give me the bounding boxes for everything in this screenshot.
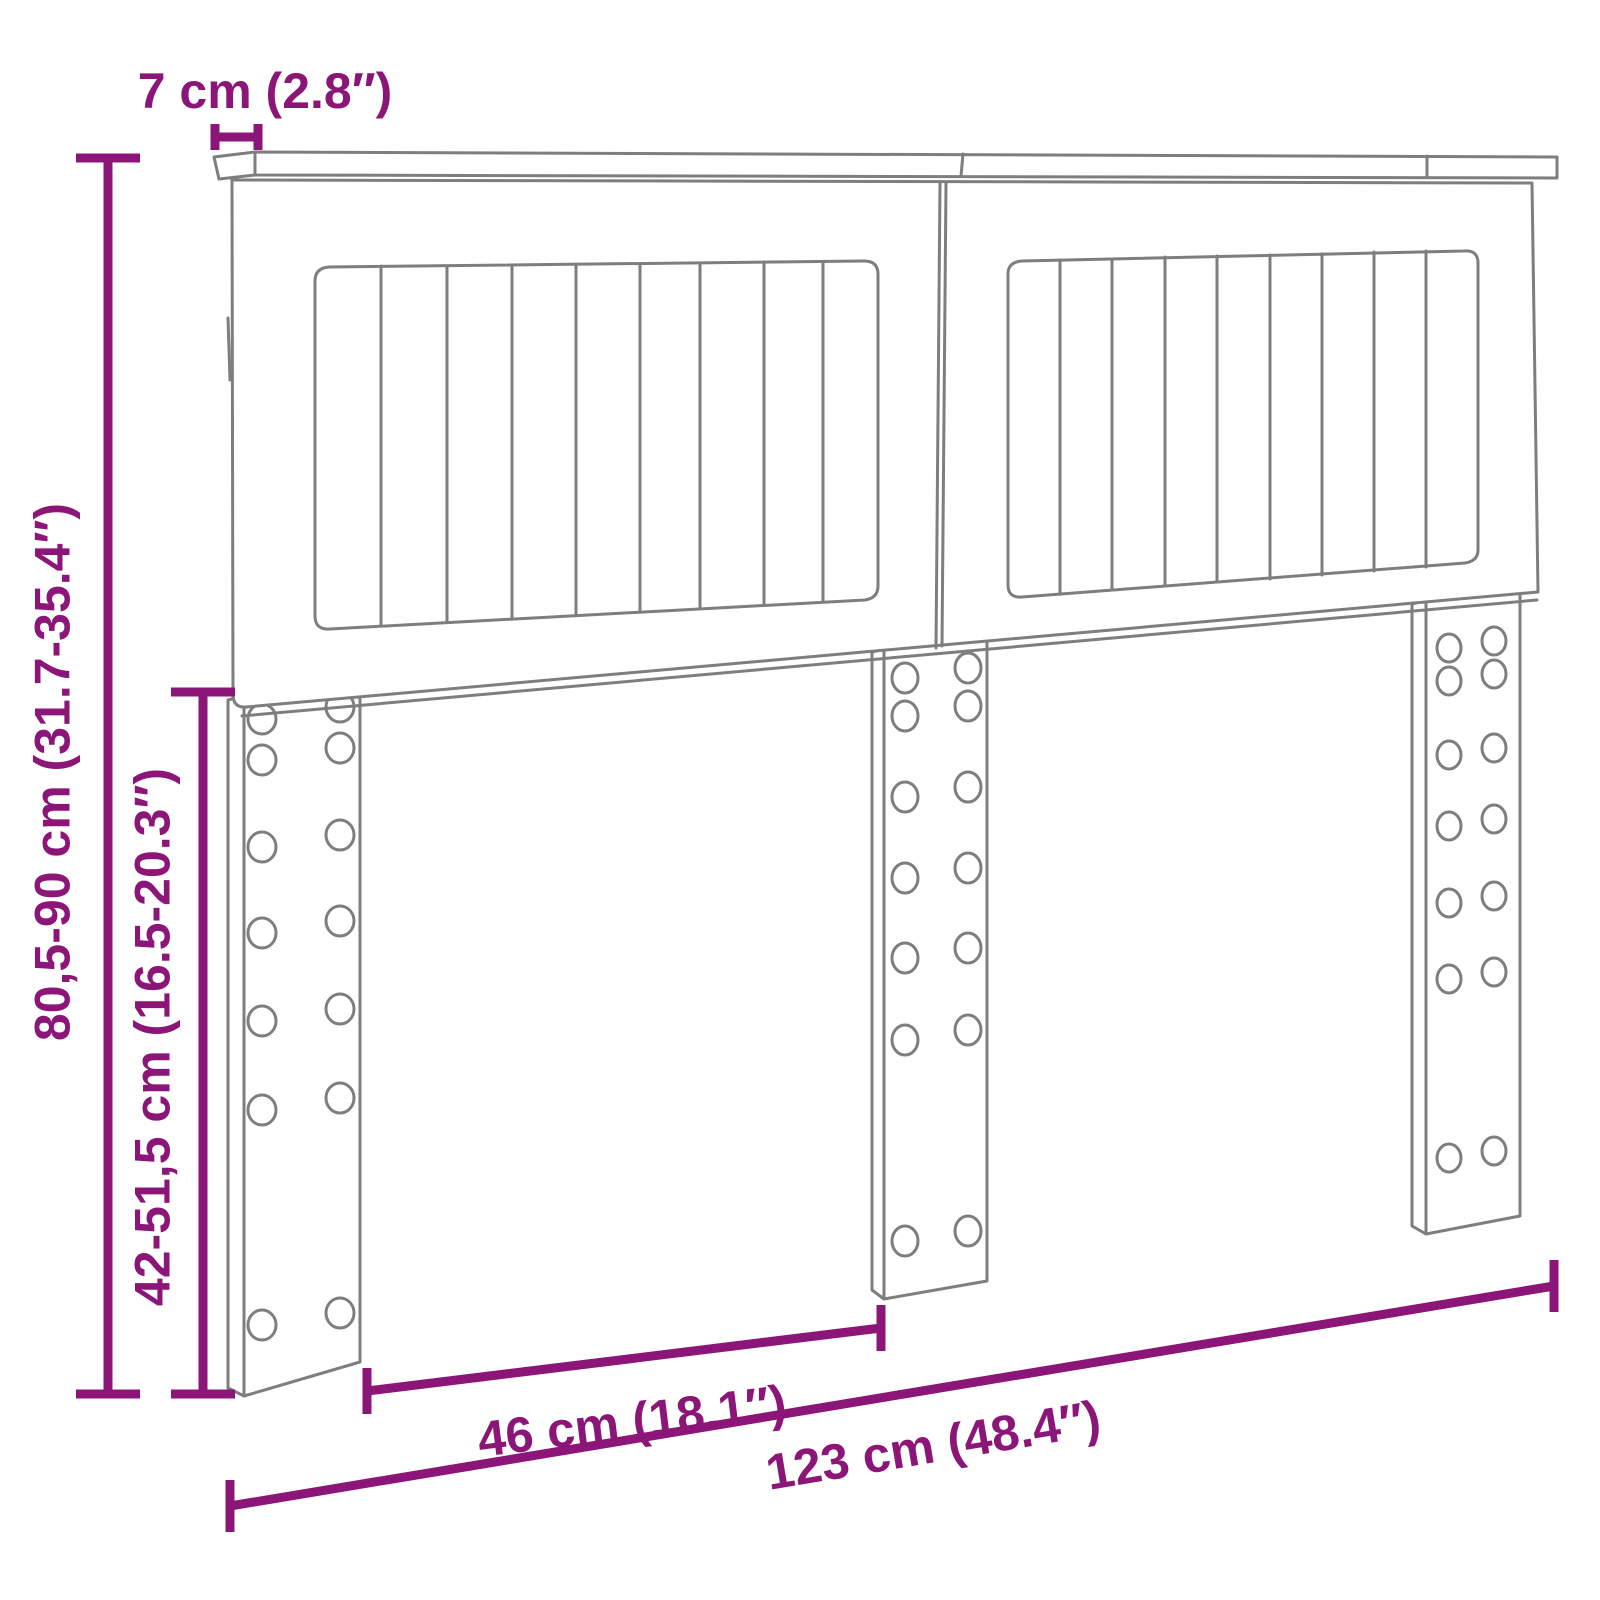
left-leg [228, 686, 360, 1396]
top-board-left-cap [214, 152, 255, 179]
diagram-canvas: 7 cm (2.8″) 80,5-90 cm (31.7-35.4″) 42-5… [0, 0, 1600, 1600]
screw-hole [892, 863, 918, 893]
screw-hole [1482, 958, 1506, 986]
screw-hole [892, 1025, 918, 1055]
dim-leg-spacing-label: 46 cm (18.1″) [475, 1374, 790, 1467]
frame-left-edge-detail [228, 318, 230, 380]
screw-hole [1482, 1137, 1506, 1165]
screw-hole [892, 782, 918, 812]
screw-hole [1437, 741, 1461, 769]
screw-hole [892, 663, 918, 693]
top-board-slab [255, 152, 1557, 178]
screw-hole [1437, 889, 1461, 917]
screw-hole [326, 1298, 354, 1328]
left-leg-front [244, 686, 360, 1396]
screw-hole [248, 832, 276, 862]
screw-hole [955, 691, 981, 721]
screw-hole [326, 994, 354, 1024]
screw-hole [248, 1006, 276, 1036]
screw-hole [955, 1216, 981, 1246]
screw-hole [955, 772, 981, 802]
screw-hole [1437, 812, 1461, 840]
dim-leg-height [171, 692, 235, 1394]
right-panel [1008, 251, 1478, 597]
dim-top-thickness-label: 7 cm (2.8″) [138, 63, 393, 119]
screw-hole [1482, 660, 1506, 688]
right-leg [1412, 592, 1520, 1234]
screw-hole [955, 653, 981, 683]
screw-hole [248, 1310, 276, 1340]
left-panel-border [315, 261, 878, 629]
screw-hole [248, 1095, 276, 1125]
right-leg-side-edge [1412, 600, 1426, 1234]
dim-overall-height-label: 80,5-90 cm (31.7-35.4″) [25, 503, 81, 1041]
center-leg-side-edge [872, 649, 884, 1299]
screw-hole [1482, 805, 1506, 833]
screw-hole [326, 906, 354, 936]
right-panel-border [1008, 251, 1478, 597]
top-board-seam [961, 154, 963, 176]
headboard-drawing [214, 152, 1557, 1396]
screw-hole [248, 745, 276, 775]
screw-hole [326, 1083, 354, 1113]
center-leg [872, 640, 987, 1299]
left-panel [315, 261, 878, 629]
screw-hole [1437, 965, 1461, 993]
top-board [214, 152, 1557, 179]
screw-hole [892, 701, 918, 731]
screw-hole [1437, 634, 1461, 662]
screw-hole [1437, 667, 1461, 695]
headboard-dimension-diagram: 7 cm (2.8″) 80,5-90 cm (31.7-35.4″) 42-5… [0, 0, 1600, 1600]
dim-line [367, 1328, 881, 1391]
dim-top-thickness [215, 124, 258, 150]
screw-hole [1482, 734, 1506, 762]
dim-leg-height-label: 42-51,5 cm (16.5-20.3″) [125, 768, 181, 1306]
screw-hole [326, 733, 354, 763]
screw-hole [1482, 627, 1506, 655]
screw-hole [1482, 882, 1506, 910]
screw-hole [248, 704, 276, 734]
screw-hole [892, 1226, 918, 1256]
dim-overall-width [230, 1260, 1554, 1532]
screw-hole [892, 943, 918, 973]
screw-hole [955, 853, 981, 883]
screw-hole [955, 933, 981, 963]
left-leg-side-edge [228, 696, 244, 1396]
screw-hole [955, 1015, 981, 1045]
screw-hole [248, 918, 276, 948]
screw-hole [1437, 1144, 1461, 1172]
screw-hole [326, 820, 354, 850]
